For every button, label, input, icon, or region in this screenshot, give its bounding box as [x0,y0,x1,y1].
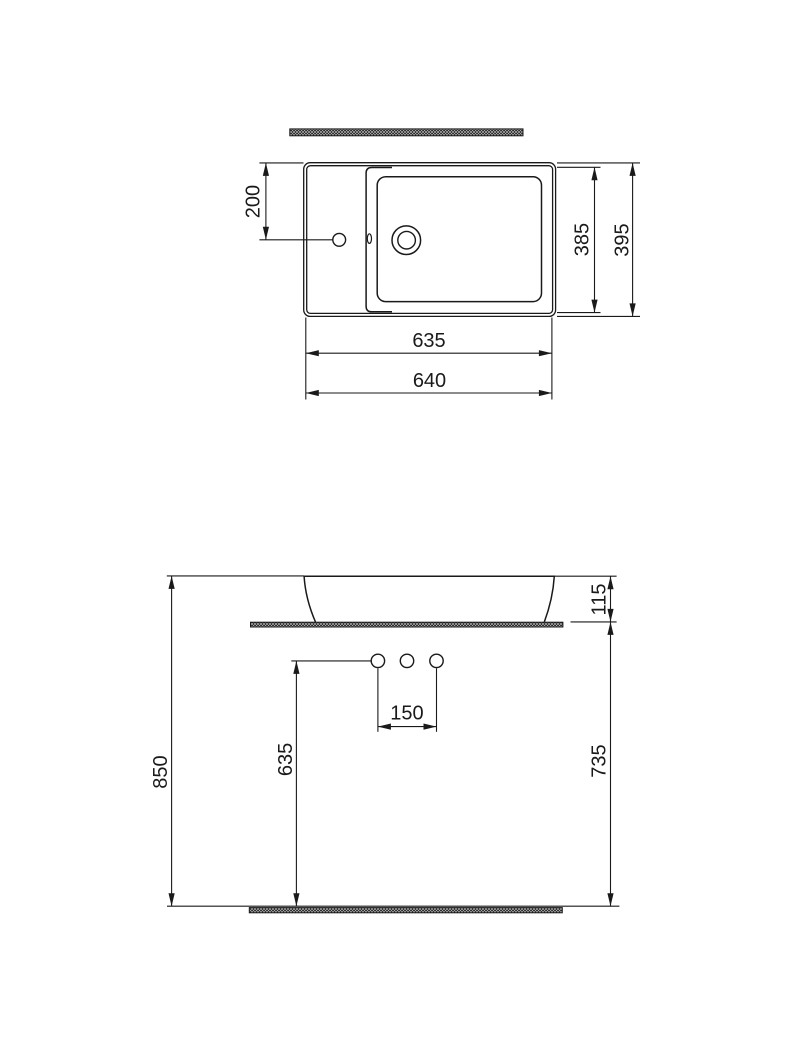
svg-text:635: 635 [275,743,297,776]
svg-text:850: 850 [150,755,172,788]
svg-text:735: 735 [588,744,610,777]
svg-text:150: 150 [390,703,423,725]
svg-text:395: 395 [611,223,633,256]
svg-text:200: 200 [242,185,264,218]
svg-text:385: 385 [572,223,594,256]
svg-text:115: 115 [588,584,610,616]
svg-text:640: 640 [413,370,446,392]
svg-text:635: 635 [412,330,445,352]
